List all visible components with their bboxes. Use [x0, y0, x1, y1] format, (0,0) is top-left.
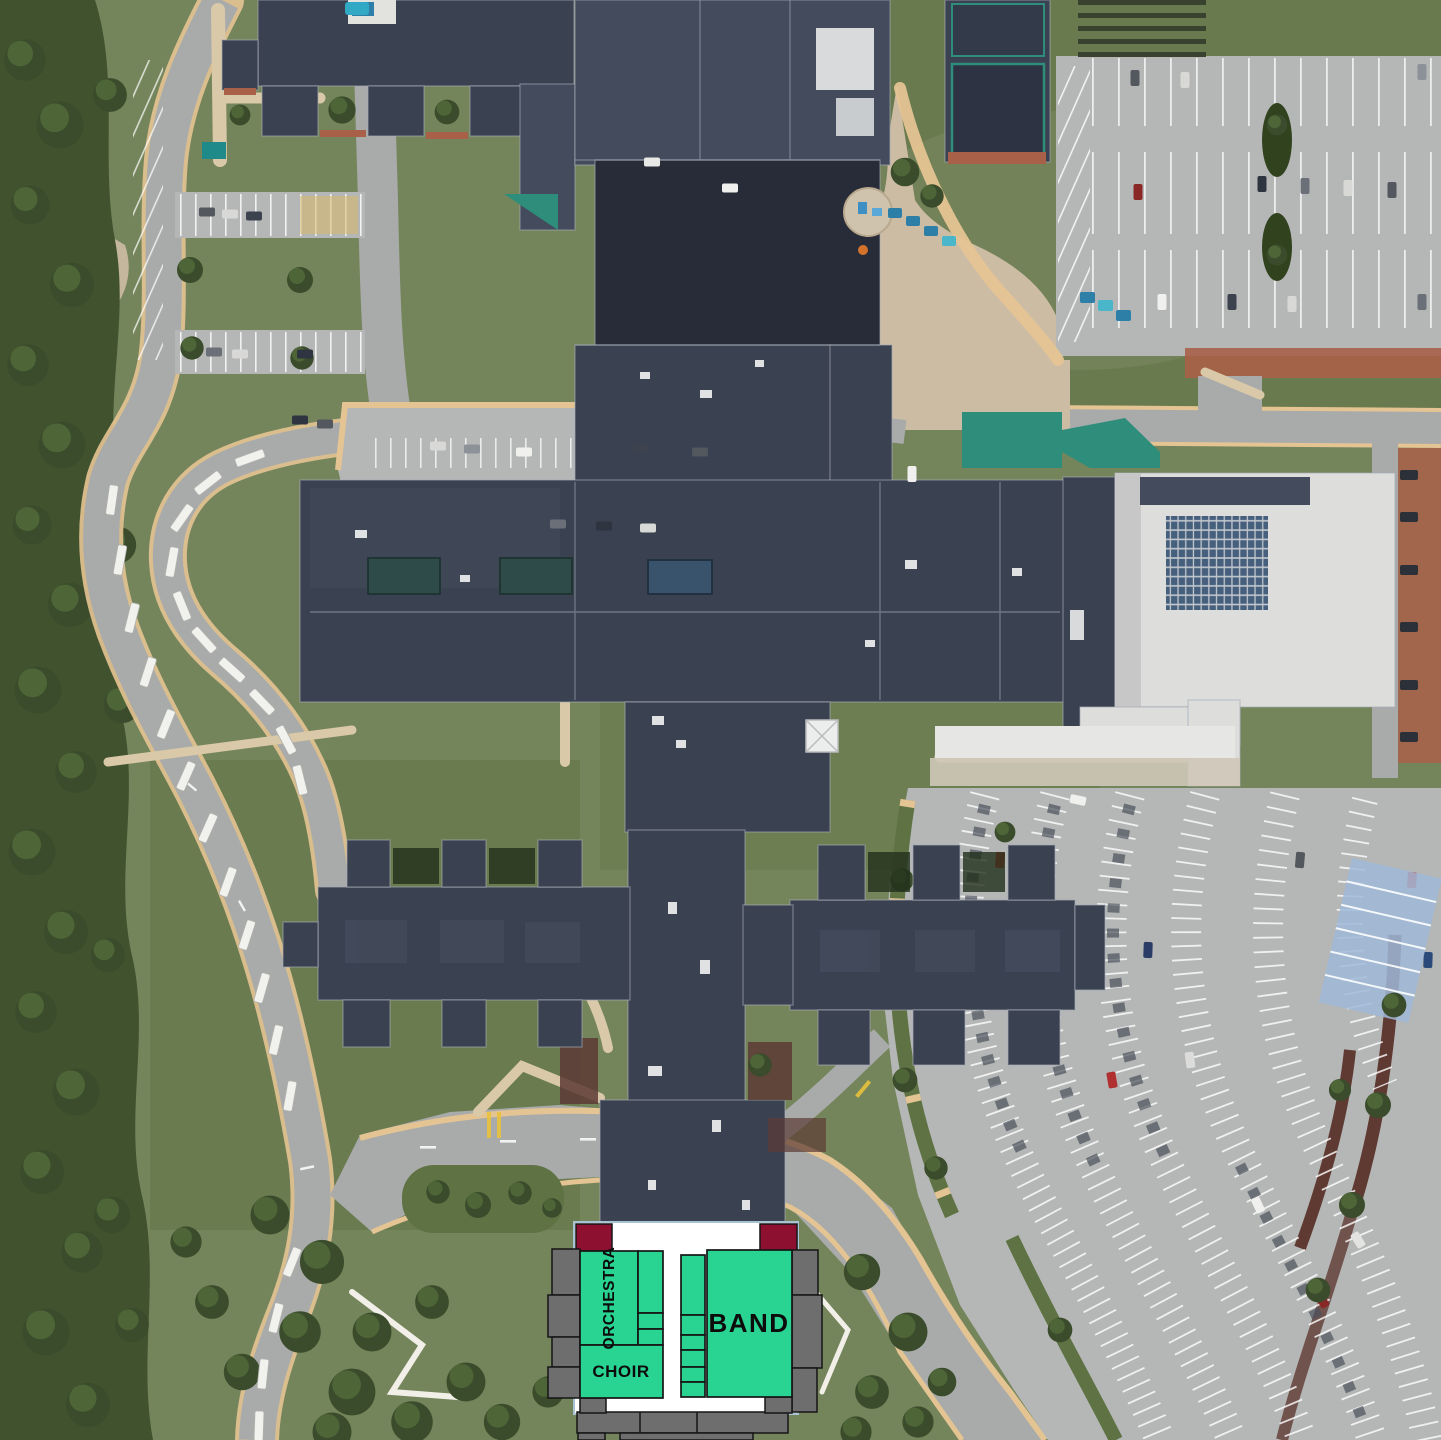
choir-label: CHOIR: [592, 1362, 649, 1381]
dumpster: [202, 142, 226, 159]
practice-rooms-left: [638, 1251, 663, 1345]
practice-rooms-right: [681, 1255, 705, 1397]
cafeteria-block: [625, 702, 838, 832]
central-block: [575, 0, 892, 482]
white-walkway-canopy: [935, 726, 1235, 758]
orchestra-label: ORCHESTRA: [601, 1247, 618, 1350]
floor-plan-overlay: ORCHESTRA CHOIR BAND: [548, 1222, 822, 1440]
dropoff-island: [402, 1165, 564, 1233]
parking-strip-east: [1398, 448, 1441, 763]
band-label: BAND: [708, 1308, 789, 1338]
satellite-map[interactable]: ORCHESTRA CHOIR BAND: [0, 0, 1441, 1440]
stage-block-right: [760, 1224, 797, 1251]
bus-top: [345, 2, 369, 15]
garden-plots: [1078, 0, 1206, 60]
